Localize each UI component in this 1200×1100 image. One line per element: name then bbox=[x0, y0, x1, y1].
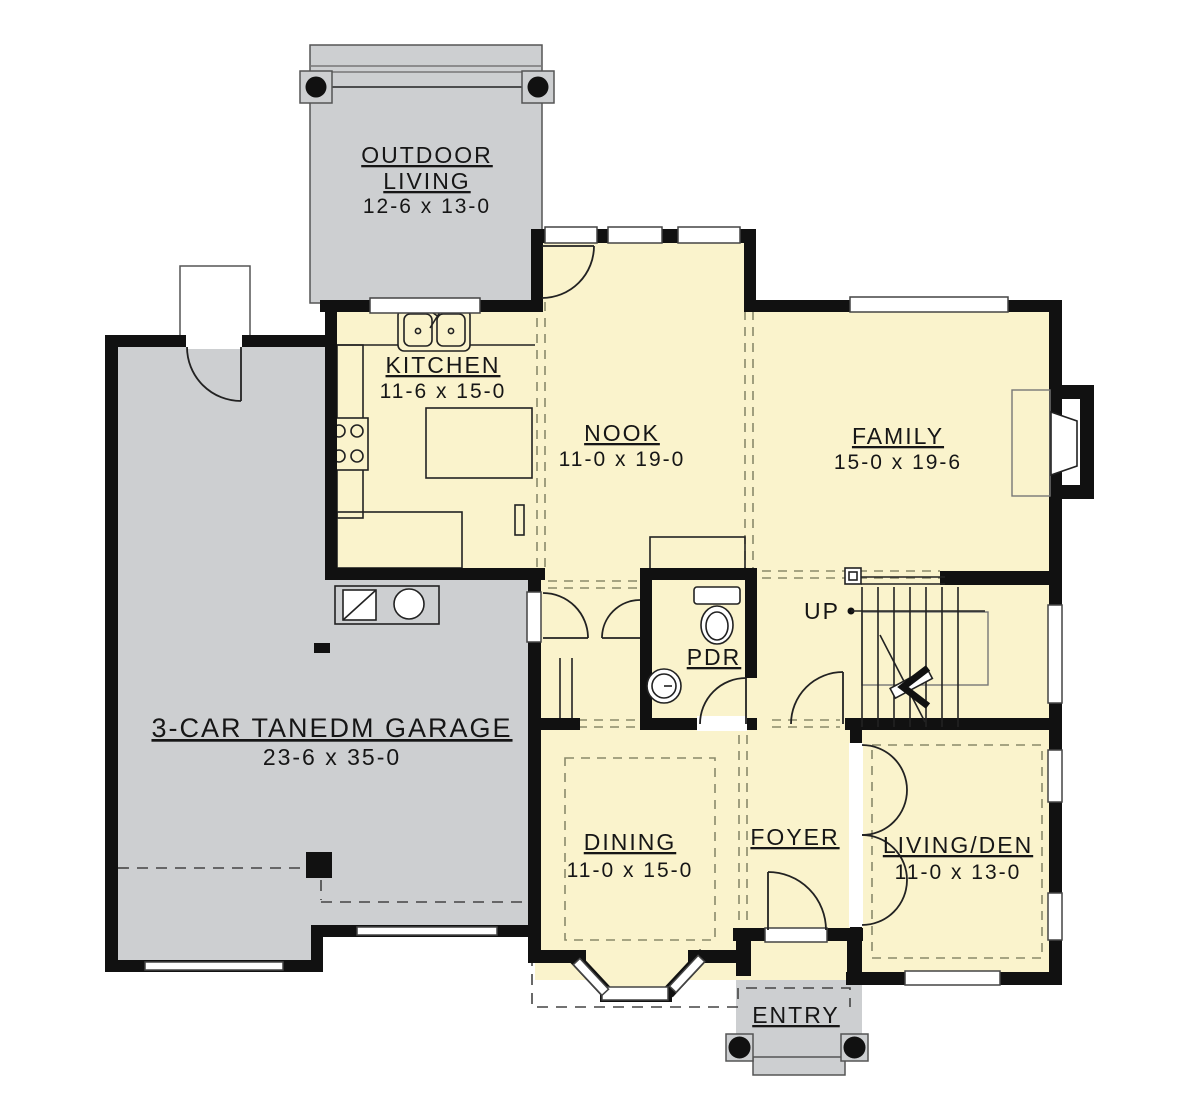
newel-post bbox=[845, 568, 861, 584]
window bbox=[1048, 750, 1062, 802]
foyer-label: FOYER bbox=[750, 824, 839, 850]
kitchen-dims: 11-6 x 15-0 bbox=[380, 380, 507, 403]
living-den-label: LIVING/DEN bbox=[883, 832, 1033, 858]
powder-room-label: PDR bbox=[687, 644, 742, 670]
stair-wall-top bbox=[940, 571, 1055, 585]
entry-label: ENTRY bbox=[752, 1002, 840, 1028]
fireplace-wall bbox=[1049, 485, 1093, 499]
pdr-wall-left bbox=[640, 568, 652, 730]
deck-post-column bbox=[528, 77, 549, 98]
entry-post-column bbox=[729, 1037, 751, 1059]
hall-floor bbox=[535, 580, 1055, 730]
window bbox=[608, 227, 662, 243]
entry-wall-left bbox=[736, 928, 751, 976]
closet-wall bbox=[535, 718, 580, 730]
sink-bowl bbox=[404, 314, 432, 346]
window bbox=[905, 971, 1000, 985]
entry-wall-right bbox=[847, 928, 862, 976]
nook-wall-left bbox=[531, 229, 543, 312]
garage-post bbox=[306, 852, 332, 878]
sink-bowl bbox=[437, 314, 465, 346]
entry-post-column bbox=[844, 1037, 866, 1059]
living-den-dims: 11-0 x 13-0 bbox=[895, 861, 1022, 884]
window bbox=[527, 592, 541, 642]
nook-label: NOOK bbox=[584, 420, 660, 446]
window bbox=[850, 297, 1008, 312]
family-label: FAMILY bbox=[852, 423, 944, 449]
wall-stub bbox=[314, 643, 330, 653]
outdoor-living-label-1: OUTDOOR bbox=[361, 142, 493, 168]
water-heater bbox=[394, 589, 424, 619]
garage-door bbox=[145, 962, 283, 970]
door-opening bbox=[849, 743, 863, 927]
kitchen-wall-bottom bbox=[325, 568, 545, 580]
toilet-tank bbox=[694, 587, 740, 604]
family-dims: 15-0 x 19-6 bbox=[834, 451, 962, 474]
bay-window bbox=[602, 987, 668, 1000]
nook-wall-right bbox=[744, 229, 756, 312]
garage-stoop bbox=[180, 266, 250, 336]
door-opening bbox=[186, 333, 242, 349]
pdr-wall-right bbox=[745, 568, 757, 678]
outdoor-living-label-2: LIVING bbox=[383, 168, 470, 194]
outdoor-living-dims: 12-6 x 13-0 bbox=[363, 195, 491, 218]
kitchen-garage-wall bbox=[325, 300, 337, 580]
kitchen-label: KITCHEN bbox=[386, 352, 501, 378]
dining-label: DINING bbox=[584, 829, 677, 855]
door-opening bbox=[697, 716, 747, 731]
window bbox=[545, 227, 597, 243]
window bbox=[1048, 605, 1062, 703]
garage-label: 3-CAR TANEDM GARAGE bbox=[151, 713, 512, 743]
fireplace-wall bbox=[1080, 385, 1094, 499]
stairs-up-label: UP bbox=[804, 598, 840, 624]
garage-door bbox=[357, 927, 497, 935]
window bbox=[370, 298, 480, 313]
kitchen-sink bbox=[398, 309, 470, 351]
window bbox=[1048, 893, 1062, 940]
dining-dims: 11-0 x 15-0 bbox=[567, 859, 694, 882]
nook-dims: 11-0 x 19-0 bbox=[559, 448, 686, 471]
window bbox=[678, 227, 740, 243]
nook-floor bbox=[535, 232, 752, 580]
firebox bbox=[1051, 412, 1077, 475]
entry-threshold bbox=[765, 928, 827, 942]
floor-plan-page: OUTDOOR LIVING 12-6 x 13-0 KITCHEN 11-6 … bbox=[0, 0, 1200, 1100]
pdr-wall-top bbox=[640, 568, 757, 580]
entry-step bbox=[753, 1057, 845, 1075]
garage-dims: 23-6 x 35-0 bbox=[263, 744, 401, 770]
garage-wall-left bbox=[105, 335, 118, 972]
floor-plan: OUTDOOR LIVING 12-6 x 13-0 KITCHEN 11-6 … bbox=[0, 0, 1200, 1100]
deck-post-column bbox=[306, 77, 327, 98]
garage-wall-step bbox=[311, 925, 323, 972]
